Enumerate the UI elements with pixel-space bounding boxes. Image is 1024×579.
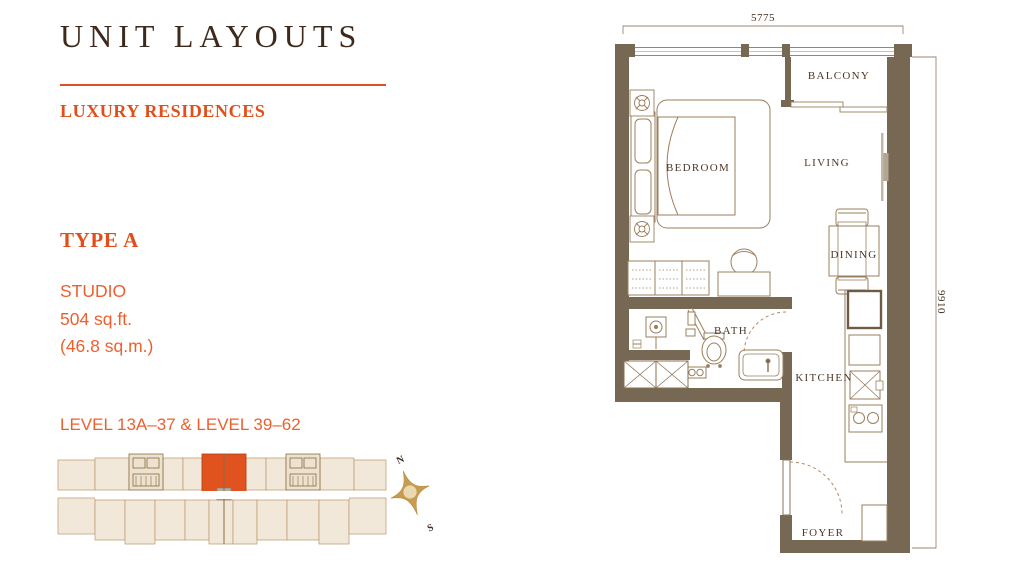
- key-unit: [209, 500, 233, 544]
- key-unit: [257, 500, 287, 540]
- key-unit: [125, 500, 155, 544]
- page-title: UNIT LAYOUTS: [60, 18, 362, 55]
- dimension-width-label: 5775: [751, 12, 775, 24]
- ac-ledge: [624, 361, 688, 388]
- key-unit: [95, 458, 129, 490]
- divider-rule: [60, 84, 386, 86]
- key-unit: [246, 458, 266, 490]
- key-unit: [95, 500, 125, 540]
- page-subtitle: LUXURY RESIDENCES: [60, 101, 265, 122]
- key-plan: [57, 448, 387, 548]
- room-label-kitchen: KITCHEN: [795, 372, 852, 384]
- room-label-dining: DINING: [831, 249, 878, 261]
- key-unit: [183, 458, 202, 490]
- unit-levels: LEVEL 13A–37 & LEVEL 39–62: [60, 415, 301, 435]
- compass-star-icon: [384, 465, 436, 521]
- unit-description: STUDIO 504 sq.ft. (46.8 sq.m.): [60, 278, 153, 361]
- unit-type-title: TYPE A: [60, 228, 139, 253]
- kitchen-fixtures: [845, 290, 887, 541]
- key-corridor: [95, 491, 349, 499]
- entry-door: [783, 460, 842, 515]
- window-wall: [627, 48, 896, 56]
- unit-category: STUDIO: [60, 278, 153, 306]
- balcony-sliding-door: [791, 102, 887, 112]
- key-unit: [354, 460, 386, 490]
- key-unit: [155, 500, 185, 540]
- key-unit: [349, 498, 386, 534]
- dimension-height-label: 9910: [935, 290, 947, 314]
- room-label-living: LIVING: [804, 157, 850, 169]
- desk-and-chair: [718, 249, 770, 296]
- key-unit: [58, 460, 95, 490]
- key-unit: [233, 500, 257, 544]
- compass-north-label: N: [395, 454, 407, 467]
- key-unit: [185, 500, 209, 540]
- compass-south-label: S: [426, 522, 436, 535]
- unit-area-sqft: 504 sq.ft.: [60, 306, 153, 334]
- wardrobe: [628, 261, 709, 295]
- room-label-bath: BATH: [714, 325, 748, 337]
- key-unit: [320, 458, 354, 490]
- room-label-balcony: BALCONY: [808, 70, 870, 82]
- floor-plan: 5775 9910: [600, 0, 1024, 579]
- key-unit: [319, 500, 349, 544]
- compass: N S: [383, 446, 447, 542]
- room-label-foyer: FOYER: [802, 527, 845, 539]
- unit-area-sqm: (46.8 sq.m.): [60, 333, 153, 361]
- key-unit: [266, 458, 286, 490]
- key-unit: [163, 458, 183, 490]
- key-unit: [287, 500, 319, 540]
- bath-door-swing: [744, 312, 786, 354]
- key-unit: [58, 498, 95, 534]
- room-label-bedroom: BEDROOM: [666, 162, 730, 174]
